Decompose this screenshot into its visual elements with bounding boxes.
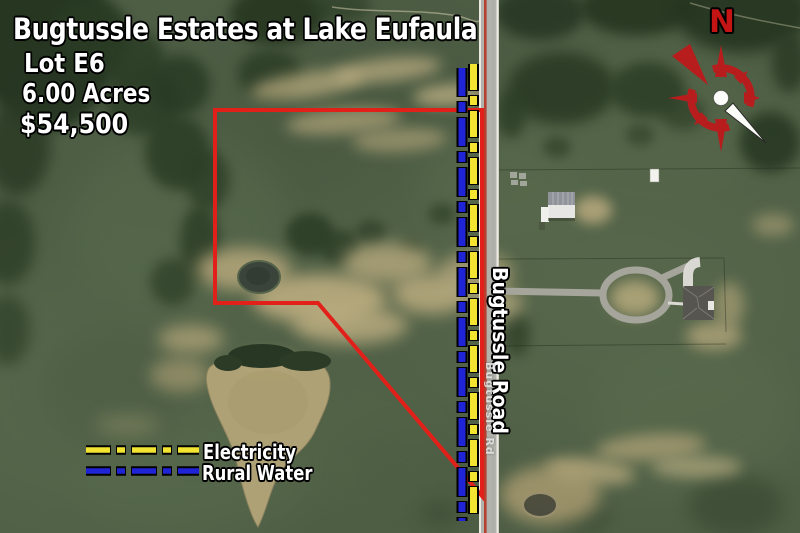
compass-rose-icon	[668, 44, 766, 152]
debris	[510, 172, 527, 186]
northwest-arrow-icon	[672, 44, 708, 85]
legend-label-rural-water: Rural Water	[202, 462, 312, 484]
aerial-map: Bugtussle Estates at Lake Eufaula Lot E6…	[0, 0, 800, 533]
house	[683, 286, 714, 320]
listing-price: $54,500	[20, 110, 128, 140]
listing-lot: Lot E6	[24, 50, 105, 79]
shed	[650, 169, 659, 182]
north-label: N	[708, 5, 736, 39]
listing-acreage: 6.00 Acres	[22, 80, 150, 109]
road-map-label: Bugtussle Rd	[483, 362, 496, 456]
rural-water-line-sample	[86, 466, 199, 476]
driveway	[497, 262, 700, 320]
listing-title: Bugtussle Estates at Lake Eufaula	[13, 14, 477, 46]
small-pond	[238, 261, 280, 293]
barn	[539, 192, 575, 230]
electricity-line-sample	[86, 445, 199, 455]
legend-label-electricity: Electricity	[203, 441, 296, 463]
compass-needle-icon	[725, 103, 766, 143]
large-pond	[206, 344, 331, 527]
bottom-right-pond	[523, 493, 557, 517]
